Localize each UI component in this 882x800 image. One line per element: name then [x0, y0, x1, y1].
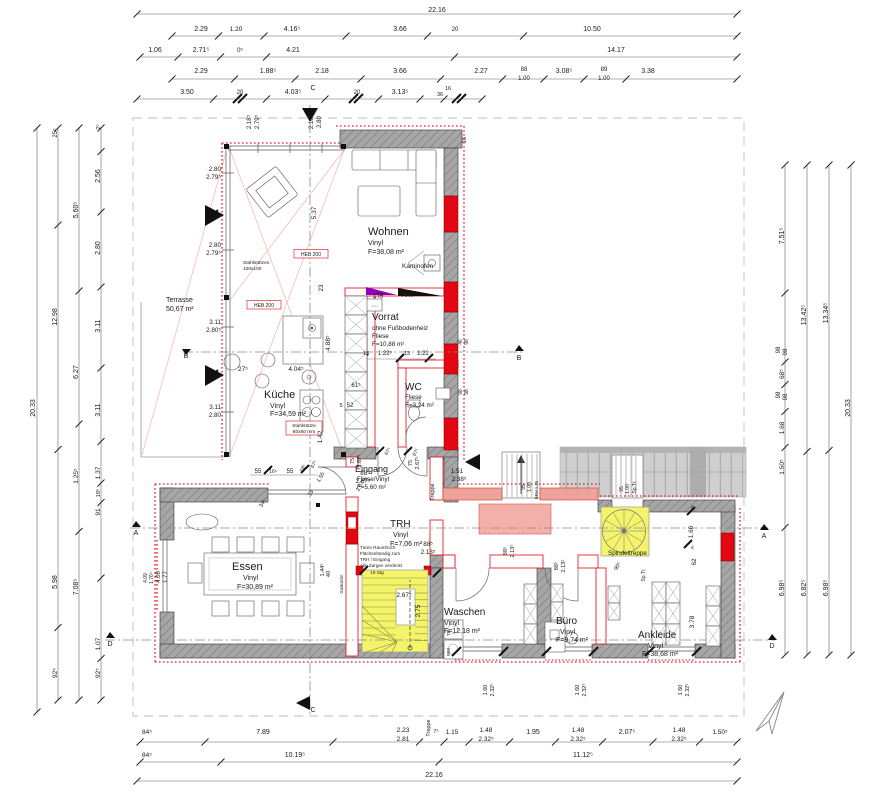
dim-label: 2.79⁵: [254, 114, 261, 129]
room-floor-ankleide: Vinyl: [648, 643, 663, 650]
dim-label: 2.32⁵: [478, 736, 494, 743]
dim-label: 1.68: [779, 421, 786, 434]
armchair: [246, 166, 298, 218]
steel-beam-note: HEB 200: [301, 252, 321, 258]
dim-label: 2.18⁵: [246, 114, 253, 129]
dim-label: 2.71⁵: [193, 47, 210, 54]
dim-label: 1.60: [575, 685, 581, 696]
room-floor-eingang: Fliese/Vinyl: [357, 476, 389, 483]
room-area-waschen: F=12,18 m²: [444, 628, 481, 635]
room-label-trh: TRH: [390, 519, 411, 530]
dim-label: 20: [237, 90, 244, 96]
dim-label: 88⁵: [423, 541, 433, 548]
dim-label: 7.89: [256, 729, 270, 736]
dim-label: 2.29: [194, 26, 208, 33]
dim-label: 1.00: [598, 76, 610, 82]
dim-label: 5: [339, 403, 342, 409]
dim-label: 1.06: [148, 47, 162, 54]
dim-label: 2.75: [415, 604, 422, 617]
dim-label: 13: [404, 351, 410, 357]
dim-label: 2.80⁵: [206, 327, 221, 334]
dim-label: 2.18⁵: [308, 114, 315, 129]
washer-label: WM: [446, 648, 451, 656]
dim-label: 20.33: [845, 399, 852, 417]
room-label-vorrat: Vorrat: [372, 312, 399, 323]
dim-label: 1.07: [95, 637, 102, 650]
dim-label: 1.60: [483, 685, 489, 696]
dim-label: 7.51⁵: [779, 228, 786, 245]
dim-label: 84⁵: [142, 752, 152, 759]
dim-label: 1.95: [526, 729, 540, 736]
dim-label: 16⁵: [269, 469, 277, 475]
dim-label: 1.00: [527, 482, 533, 492]
dim-label: 1.20: [230, 26, 243, 33]
dim-label: 12.98: [52, 308, 59, 326]
dim-label: 16: [445, 86, 451, 92]
dim-label: 2.13⁵: [560, 560, 567, 573]
dim-label: 2.79⁵: [206, 174, 221, 181]
dim-label: 2.13⁵: [509, 545, 516, 558]
dim-label: 1.42: [317, 430, 324, 443]
room-area-terrasse: 50,67 m²: [166, 306, 194, 313]
dim-label: 84⁵: [142, 729, 152, 736]
hkv-label: HKV: [402, 293, 414, 299]
section-marker-a: A: [762, 533, 767, 540]
room-label-eingang: Eingang: [355, 464, 388, 474]
dim-label: 0⁵: [237, 47, 243, 54]
dim-label: 88: [521, 67, 528, 73]
room-floor-kueche: Vinyl: [270, 403, 285, 410]
room-label-waschen: Waschen: [444, 607, 485, 618]
dim-label: 4.88⁵: [325, 335, 332, 351]
dim-label: 1.22: [417, 351, 429, 357]
dim-label: 6.27: [73, 365, 80, 379]
section-marker-b: B: [184, 353, 189, 360]
dim-label: 7.08⁵: [73, 579, 80, 596]
dim-label: 52: [347, 403, 354, 409]
dim-label: 2.13⁵: [421, 549, 436, 556]
room-floor-wc: Fliese: [405, 394, 422, 401]
room-area-kueche: F=34,59 m²: [270, 411, 307, 418]
dim-label: 2.81: [397, 736, 410, 743]
dim-label: 3.66: [393, 68, 407, 75]
sofa: [352, 150, 436, 216]
dim-label: 4.16⁵: [284, 26, 301, 33]
dim-label: 90⁵: [613, 561, 623, 572]
dim-label: 20: [354, 90, 361, 96]
dim-label: 98: [776, 346, 782, 353]
dim-label: 3.78: [689, 615, 696, 628]
dim-label: 2.80: [317, 116, 323, 128]
section-marker-b: B: [517, 355, 522, 362]
dim-label: 13: [363, 351, 369, 357]
dim-label: 1.50⁵: [779, 459, 786, 475]
dim-label: 2.32⁵: [570, 736, 586, 743]
dim-label: Sp.Tr.: [632, 480, 638, 493]
room-area-vorrat: F=10,88 m²: [372, 341, 404, 348]
dim-label: 1.44⁵: [319, 564, 326, 577]
kaminofen-label: Kaminofen: [402, 263, 433, 270]
dim-label: 98: [783, 393, 789, 400]
room-area-wohnen: F=38,08 m²: [368, 249, 405, 256]
dim-label: 2.67⁵: [396, 592, 412, 599]
dim-label: 23: [319, 284, 325, 291]
dim-label: 2.79⁵: [206, 250, 221, 257]
dim-label: 1.60: [678, 685, 684, 696]
room-note-vorrat: ohne Fußbodenheiz: [372, 325, 428, 332]
dim-label: ···: [372, 303, 379, 310]
dim-label: 1.25⁵: [73, 468, 80, 484]
dim-label: 6.98⁵: [823, 580, 830, 597]
dim-label: 61⁵: [351, 382, 361, 389]
steel-column-note: 80x80 mm: [293, 429, 315, 435]
dim-label: 33: [307, 489, 315, 497]
stair-count-label: 19 Stg: [370, 570, 384, 575]
dim-label: 7⁵: [433, 728, 438, 735]
steel-column-note: Stahlstützen: [243, 260, 270, 266]
dim-label: 2.32⁵: [684, 684, 691, 697]
dim-label: 36: [437, 92, 443, 98]
dim-label: 1.00: [518, 76, 530, 82]
dim-label: 3.13⁵: [392, 89, 409, 96]
dim-label: 1.50⁵: [712, 729, 728, 736]
dim-label: 2.80: [209, 242, 222, 249]
room-area-essen: F=30,89 m²: [237, 584, 274, 591]
dim-label: 1.51: [451, 468, 464, 475]
dim-label: 1.00: [625, 484, 631, 494]
dim-label: 10.50: [583, 26, 601, 33]
room-label-ankleide: Ankleide: [638, 630, 677, 641]
dim-label: Gaskamin: [339, 574, 344, 594]
door-note: TRH / Eingang: [360, 557, 391, 562]
dim-label: 88⁵: [553, 562, 560, 570]
steel-column-note: 100x100: [243, 266, 262, 272]
dim-label: 4⁵: [689, 544, 696, 550]
dim-label: 2.80: [95, 241, 102, 255]
section-marker-d: D: [769, 643, 774, 650]
room-area-buero: F=9,74 m²: [556, 637, 589, 644]
room-label-buero: Büro: [556, 616, 578, 627]
dim-label: 40: [326, 571, 332, 577]
dim-label: 2⁵: [95, 124, 102, 129]
dim-label: 11.12⁵: [573, 752, 593, 759]
room-area-ankleide: F=38,68 m²: [642, 651, 679, 658]
dim-label: 5.98: [52, 575, 59, 589]
dim-label: 6.82⁵: [801, 580, 808, 597]
dim-label: 1.37: [95, 466, 102, 479]
dim-label: 92⁵: [52, 668, 59, 678]
door-note: Alle Zargen verdeckt: [360, 563, 403, 568]
dim-label: 98: [783, 348, 789, 355]
room-label-wc: WC: [405, 382, 422, 393]
room-floor-essen: Vinyl: [243, 575, 258, 582]
dim-label: 3.11: [95, 319, 102, 332]
section-marker-d: D: [107, 641, 112, 648]
dim-label: 2.32⁵: [489, 684, 496, 697]
dim-label: 14.17: [607, 47, 625, 54]
dim-label: 2.80: [209, 166, 222, 173]
dim-label: 98: [776, 391, 782, 398]
floorplan-page: 22.162.291.204.16⁵3.662010.501.062.71⁵0⁵…: [0, 0, 882, 800]
dim-label: 1.55: [316, 471, 327, 483]
room-floor-waschen: Vinyl: [444, 620, 459, 627]
dim-label: 89: [601, 67, 608, 73]
dim-label: 2.80: [209, 412, 222, 419]
dim-label: 55: [287, 469, 294, 475]
dim-label: 2.07⁵: [619, 729, 636, 736]
dim-label: 2.32⁵: [671, 736, 687, 743]
dim-label: 4.21: [286, 47, 300, 54]
room-area-eingang: F=5,60 m²: [357, 484, 386, 491]
room-floor-trh: Vinyl: [393, 532, 408, 539]
dim-label: 2.18: [315, 68, 329, 75]
dim-label: 13.34⁵: [823, 303, 830, 324]
dim-label: 4.03⁵: [285, 89, 302, 96]
treppe-label: Treppe: [430, 483, 436, 500]
spindeltreppe-label: Spindeltreppe: [608, 550, 647, 557]
dim-label: 3.11: [209, 319, 221, 326]
dim-label: 25⁵: [52, 128, 59, 138]
dim-label: 67⁵: [412, 448, 421, 458]
dim-label: 3.66: [393, 26, 407, 33]
dim-label: 2.23: [397, 727, 410, 734]
elt-label: ELT: [372, 291, 383, 297]
dim-label: 22.16: [428, 7, 446, 14]
dim-label: Sp.Tr.: [641, 568, 647, 581]
dim-label: Treppe: [426, 719, 432, 736]
steel-column-note: Stahlstütze: [292, 423, 316, 429]
dim-label: 1.48: [572, 727, 585, 734]
dim-label: 1.15: [446, 729, 459, 736]
dim-label: 3.50: [180, 89, 194, 96]
dim-label: 3.38: [641, 68, 655, 75]
dim-label: 10.19⁵: [285, 752, 306, 759]
floor-plan-canvas: 22.162.291.204.16⁵3.662010.501.062.71⁵0⁵…: [0, 0, 882, 800]
section-marker-a: A: [134, 530, 139, 537]
dim-label: 75: [408, 460, 414, 466]
room-label-essen: Essen: [232, 561, 263, 573]
section-marker-c: C: [310, 707, 315, 714]
dim-label: 5.37: [311, 206, 318, 219]
dim-label: 88⁵: [502, 547, 509, 555]
room-label-wohnen: Wohnen: [368, 226, 409, 238]
dim-label: 68⁵: [779, 369, 786, 379]
dim-label: 67⁵: [384, 447, 393, 457]
dim-label: 98: [464, 389, 470, 395]
dim-label: 3.08⁵: [556, 68, 573, 75]
chimney-flue: [348, 517, 356, 529]
dim-label: 55: [255, 469, 262, 475]
dim-label: 2.67⁵: [414, 457, 421, 470]
dim-label: 4.00: [156, 571, 162, 583]
dim-label: 2.32⁵: [581, 684, 588, 697]
dim-label: 92⁵: [95, 668, 102, 678]
dim-label: 1.76⁵: [149, 572, 155, 584]
dim-label: 1.48: [480, 727, 493, 734]
dim-label: 6.98⁵: [779, 580, 786, 597]
dim-label: 22.16: [425, 772, 443, 779]
dim-label: 4.04⁵: [288, 366, 304, 373]
dim-label: 18⁵: [299, 464, 308, 474]
dim-label: BRH 1.15: [534, 480, 539, 499]
dim-label: 91: [95, 508, 102, 516]
room-label-terrasse: Terrasse: [166, 297, 193, 304]
dim-label: 2.38⁵: [452, 476, 467, 483]
dim-label: 2.56: [95, 169, 102, 183]
room-area-trh: F=7,06 m²: [390, 541, 423, 548]
door-note: Flächenbündig zum: [360, 551, 400, 556]
room-floor-vorrat: Fliese: [372, 333, 389, 340]
section-marker-c: C: [310, 85, 315, 92]
dim-label: 27⁵: [238, 366, 248, 373]
dim-label: 2.29: [194, 68, 208, 75]
dim-label: 1.77: [163, 571, 169, 583]
dim-label: 5.60⁵: [73, 202, 80, 219]
room-floor-wohnen: Vinyl: [368, 240, 383, 247]
dim-label: 13.42⁵: [801, 305, 808, 326]
dim-label: 2.27: [474, 68, 488, 75]
bar-stools: [224, 353, 275, 388]
dim-label: 1.60: [688, 525, 695, 538]
dim-label: 18⁵: [95, 489, 102, 497]
dim-label: 3.11: [209, 404, 221, 411]
dim-label: 16: [462, 137, 468, 143]
dim-label: 3.11: [95, 403, 102, 416]
dim-label: 20.33: [30, 399, 37, 417]
room-floor-buero: Vinyl: [560, 629, 575, 636]
dim-label: 67⁵: [310, 460, 319, 470]
dim-label: 98: [464, 339, 470, 345]
steel-beam-note: HEB 200: [254, 303, 274, 309]
dim-label: 62: [691, 558, 698, 566]
dim-label: 1.88⁵: [260, 68, 277, 75]
dim-label: 1.22⁵: [378, 350, 393, 357]
north-arrow-icon: [756, 692, 784, 734]
room-area-wc: F=3,24 m²: [405, 402, 434, 409]
dim-label: 1.48: [673, 727, 686, 734]
room-label-kueche: Küche: [264, 389, 295, 401]
dim-label: 20: [452, 27, 459, 33]
